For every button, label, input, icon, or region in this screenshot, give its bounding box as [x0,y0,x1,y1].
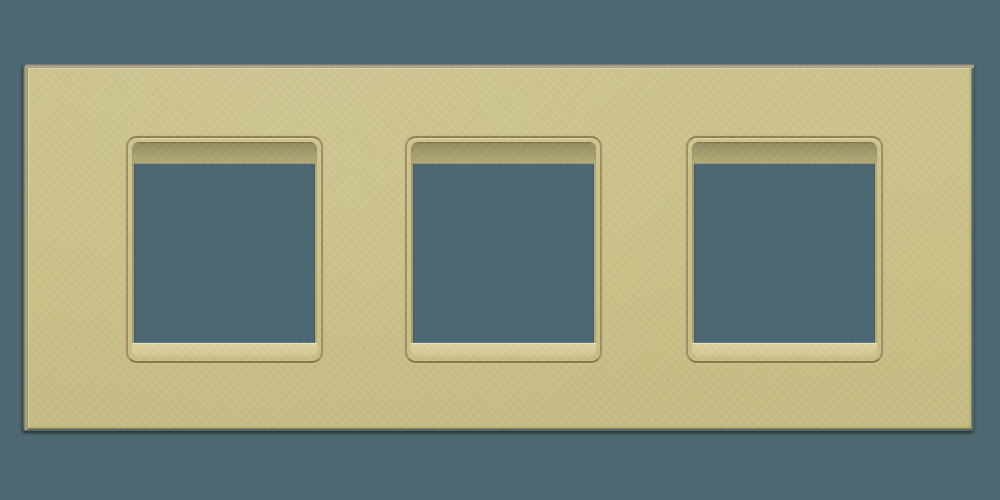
frame-opening-3 [686,136,883,363]
backdrop [0,0,1000,500]
recess-shadow-band [411,142,596,163]
recess-highlight-band [692,343,877,357]
recess-right-wall [875,163,877,343]
frame-opening-1 [126,136,323,363]
recess-right-wall [315,163,317,343]
square-cutout [413,163,594,343]
wall-plate [23,64,974,431]
recess-shadow-band [132,142,317,163]
plate-face [28,68,972,429]
opening-recess [132,142,317,357]
recess-highlight-band [132,343,317,357]
recess-right-wall [594,163,596,343]
recess-shadow-band [692,142,877,163]
opening-recess [692,142,877,357]
recess-highlight-band [411,343,596,357]
square-cutout [694,163,875,343]
square-cutout [134,163,315,343]
frame-opening-2 [405,136,602,363]
opening-recess [411,142,596,357]
